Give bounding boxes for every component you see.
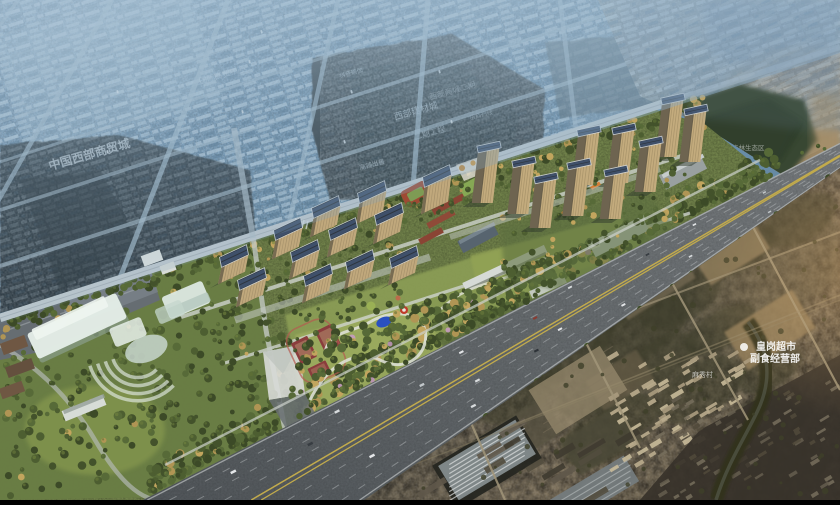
svg-text:皇岗超市: 皇岗超市: [756, 340, 796, 353]
svg-text:副食经营部: 副食经营部: [750, 352, 800, 365]
svg-text:麻秀村: 麻秀村: [692, 370, 713, 379]
